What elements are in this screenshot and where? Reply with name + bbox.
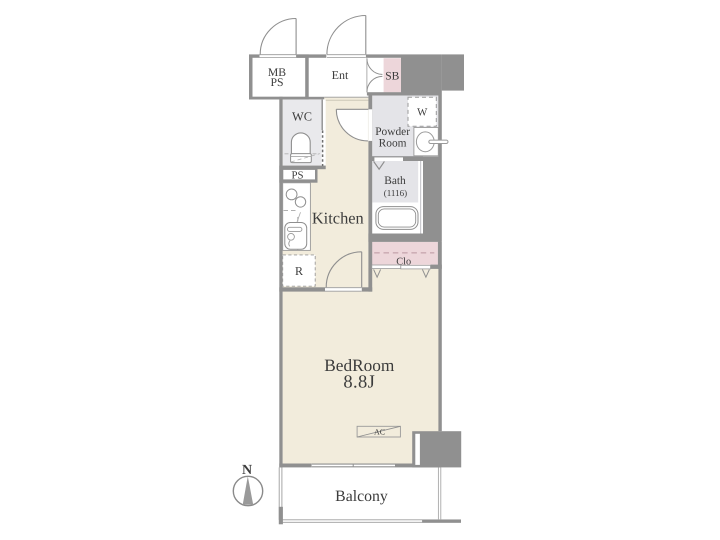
svg-text:AC: AC [374,427,385,436]
svg-text:8.8J: 8.8J [343,373,375,393]
svg-text:Room: Room [379,137,407,149]
svg-text:PS: PS [270,76,283,89]
svg-text:SB: SB [385,70,399,82]
svg-text:W: W [417,106,428,118]
svg-text:(1116): (1116) [384,188,407,198]
svg-text:R: R [295,264,303,278]
svg-text:WC: WC [292,109,312,123]
svg-text:Balcony: Balcony [335,488,388,505]
svg-text:PS: PS [291,169,303,181]
svg-text:Powder: Powder [375,126,410,138]
svg-text:Ent: Ent [332,68,349,82]
svg-text:N: N [242,463,252,478]
svg-text:Clo: Clo [396,256,411,267]
svg-text:Kitchen: Kitchen [312,208,364,227]
svg-text:Bath: Bath [384,175,406,187]
